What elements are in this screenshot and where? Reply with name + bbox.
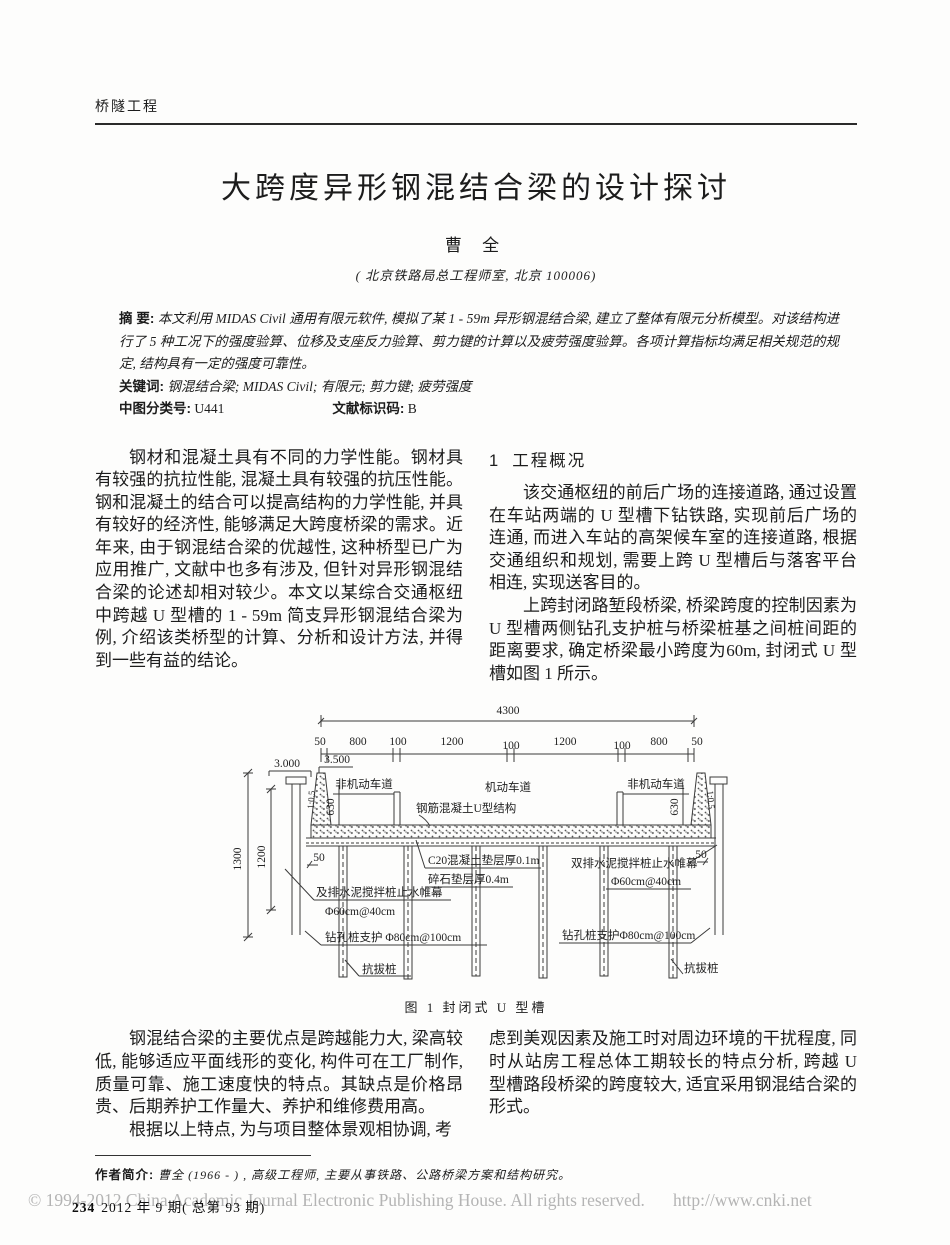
dim-seg-6: 100 [613,740,631,752]
section-1-number: 1 [489,452,498,470]
dim-seg-0: 50 [314,736,326,748]
author-bio: 作者简介: 曹全 (1966 - ) , 高级工程师, 主要从事铁路、公路桥梁方… [95,1164,857,1183]
elev-right: 3.500 [324,754,350,766]
figure-1: 4300 50 800 100 1200 100 1200 100 800 50… [95,697,857,1016]
abstract-label: 摘 要: [119,311,154,326]
dim-seg-1: 800 [349,736,367,748]
label-u-structure: 钢筋混凝土U型结构 [416,801,516,815]
page-number-issue: 2342012 年 9 期( 总第 93 期) [72,1196,265,1216]
left-column-bottom: 钢混结合梁的主要优点是跨越能力大, 梁高较低, 能够适应平面线形的变化, 构件可… [95,1028,463,1141]
issue-info: 2012 年 9 期( 总第 93 期) [101,1200,265,1215]
section-1-title: 工程概况 [512,452,586,470]
label-c20-cushion: C20混凝土垫层厚0.1m [428,853,540,867]
label-curtain-left-line1: 及排水泥搅拌桩止水帷幕 [316,885,443,899]
page-title: 大跨度异形钢混结合梁的设计探讨 [95,163,857,207]
label-bored-pile-left: 钻孔桩支护 Φ80cm@100cm [325,930,461,944]
label-gravel-cushion: 碎石垫层厚0.4m [428,872,509,886]
abstract-paragraph: 摘 要: 本文利用 MIDAS Civil 通用有限元软件, 模拟了某 1 - … [119,308,839,376]
abstract-text: 本文利用 MIDAS Civil 通用有限元软件, 模拟了某 1 - 59m 异… [119,311,839,371]
u-trough-cross-section-diagram: 4300 50 800 100 1200 100 1200 100 800 50… [221,697,731,995]
right-column-bottom: 虑到美观因素及施工时对周边环境的干扰程度, 同时从站房工程总体工期较长的特点分析… [489,1028,857,1141]
dim-seg-3: 1200 [441,736,464,748]
clc-value: U441 [194,401,224,416]
dim-1300: 1300 [232,848,244,871]
section-1-paragraph-2: 上跨封闭路堑段桥梁, 桥梁跨度的控制因素为 U 型槽两侧钻孔支护桩与桥梁桩基之间… [489,595,857,685]
dim-seg-2: 100 [389,736,407,748]
advantages-paragraph: 钢混结合梁的主要优点是跨越能力大, 梁高较低, 能够适应平面线形的变化, 构件可… [95,1028,463,1118]
label-curtain-right-line2: Φ60cm@40cm [611,876,681,888]
footnote-rule [95,1155,311,1156]
section-1-heading: 1工程概况 [489,450,857,473]
label-nonmotor-lane-left: 非机动车道 [335,777,393,791]
right-column-top: 1工程概况 该交通枢纽的前后广场的连接道路, 通过设置在车站两端的 U 型槽下钻… [489,447,857,686]
keywords-row: 关键词: 钢混结合梁; MIDAS Civil; 有限元; 剪力键; 疲劳强度 [119,376,839,399]
dim-seg-7: 800 [650,736,668,748]
abstract-block: 摘 要: 本文利用 MIDAS Civil 通用有限元软件, 模拟了某 1 - … [119,308,839,421]
left-column-top: 钢材和混凝土具有不同的力学性能。钢材具有较强的抗拉性能, 混凝土具有较强的抗压性… [95,447,463,686]
column-header: 桥隧工程 [95,96,857,116]
dim-630-left: 630 [325,799,337,817]
continuation-right: 虑到美观因素及施工时对周边环境的干扰程度, 同时从站房工程总体工期较长的特点分析… [489,1028,857,1118]
dim-50-left: 50 [313,852,325,864]
label-motor-lane: 机动车道 [485,780,531,794]
page-number: 234 [72,1200,95,1215]
author-affiliation: ( 北京铁路局总工程师室, 北京 100006) [95,265,857,284]
figure-1-caption: 图 1 封闭式 U 型槽 [95,997,857,1016]
slope-left: 1:0.5 [305,790,317,810]
intro-paragraph: 钢材和混凝土具有不同的力学性能。钢材具有较强的抗拉性能, 混凝土具有较强的抗压性… [95,447,463,673]
elev-left: 3.000 [274,758,300,770]
slope-right: 1:0.5 [705,791,717,811]
page-body: 桥隧工程 大跨度异形钢混结合梁的设计探讨 曹 全 ( 北京铁路局总工程师室, 北… [95,96,857,1183]
dim-630-right: 630 [669,799,681,817]
keywords-label: 关键词: [119,379,164,394]
dim-1200: 1200 [256,846,268,869]
section-1-paragraph-1: 该交通枢纽的前后广场的连接道路, 通过设置在车站两端的 U 型槽下钻铁路, 实现… [489,482,857,595]
clc-label: 中图分类号: [119,401,191,416]
label-nonmotor-lane-right: 非机动车道 [627,777,685,791]
dim-seg-8: 50 [691,736,703,748]
body-columns-bottom: 钢混结合梁的主要优点是跨越能力大, 梁高较低, 能够适应平面线形的变化, 构件可… [95,1028,857,1141]
doc-code-label: 文献标识码: [332,401,404,416]
cnki-url: http://www.cnki.net [673,1190,812,1210]
label-bored-pile-right: 钻孔桩支护Φ80cm@100cm [562,928,695,942]
continuation-left: 根据以上特点, 为与项目整体景观相协调, 考 [95,1119,463,1142]
doc-code-value: B [408,401,417,416]
label-uplift-pile-left: 抗拔桩 [362,962,397,976]
dim-total: 4300 [497,705,520,717]
label-curtain-right-line1: 双排水泥搅拌桩止水帷幕 [571,856,698,870]
header-rule [95,123,857,125]
author-name: 曹 全 [95,231,857,256]
footnote-block: 作者简介: 曹全 (1966 - ) , 高级工程师, 主要从事铁路、公路桥梁方… [95,1155,857,1183]
dim-seg-4: 100 [502,740,520,752]
label-uplift-pile-right: 抗拔桩 [684,961,719,975]
keywords-text: 钢混结合梁; MIDAS Civil; 有限元; 剪力键; 疲劳强度 [167,379,471,394]
author-bio-text: 曹全 (1966 - ) , 高级工程师, 主要从事铁路、公路桥梁方案和结构研究… [158,1168,571,1182]
dim-seg-5: 1200 [554,736,577,748]
body-columns-top: 钢材和混凝土具有不同的力学性能。钢材具有较强的抗拉性能, 混凝土具有较强的抗压性… [95,447,857,686]
classification-row: 中图分类号: U441文献标识码: B [119,398,839,421]
label-curtain-left-line2: Φ60cm@40cm [325,906,395,918]
author-bio-label: 作者简介: [95,1168,154,1182]
